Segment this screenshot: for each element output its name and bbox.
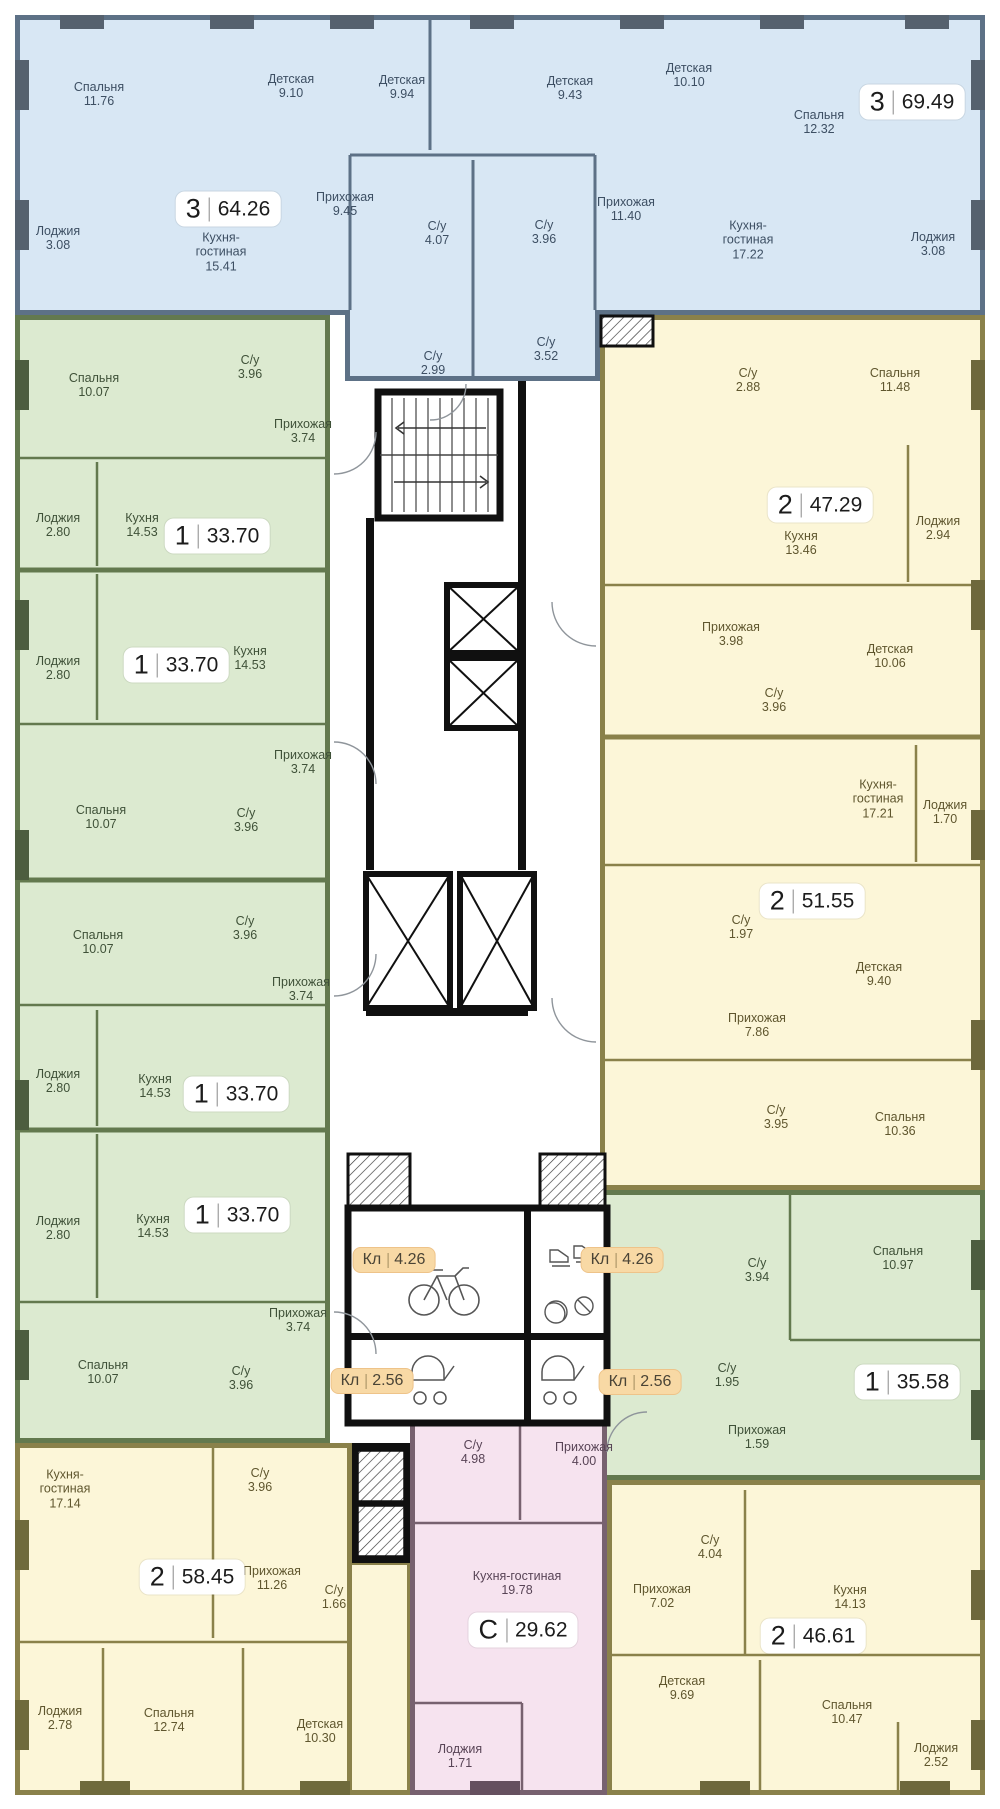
apartment-type: 1	[134, 650, 149, 681]
apartment-area: 33.70	[226, 1082, 279, 1106]
room-label: С/у2.88	[736, 366, 760, 395]
apartment-zone-blue-core[interactable]	[345, 310, 600, 381]
room-label: Детская10.30	[297, 1717, 343, 1746]
badge-divider	[893, 90, 894, 114]
room-label: Спальня10.47	[822, 1698, 872, 1727]
apartment-badge[interactable]: 133.70	[165, 519, 270, 554]
room-label: С/у3.96	[762, 686, 786, 715]
room-label: С/у3.96	[532, 218, 556, 247]
badge-divider	[633, 1375, 634, 1390]
badge-divider	[801, 493, 802, 517]
badge-divider	[506, 1618, 507, 1642]
apartment-badge[interactable]: 133.70	[185, 1198, 290, 1233]
room-label: Кухня14.53	[125, 511, 158, 540]
room-label: Детская10.06	[867, 642, 913, 671]
room-label: Прихожая4.00	[555, 1440, 613, 1469]
storage-badge: Кл4.26	[353, 1247, 436, 1273]
room-label: С/у1.95	[715, 1361, 739, 1390]
room-label: Спальня10.07	[69, 371, 119, 400]
apartment-type: 2	[778, 490, 793, 521]
stroller-icon	[542, 1356, 584, 1404]
apartment-badge[interactable]: 247.29	[768, 488, 873, 523]
room-label: С/у4.07	[425, 219, 449, 248]
room-label: Детская9.69	[659, 1674, 705, 1703]
apartment-badge[interactable]: 258.45	[140, 1560, 245, 1595]
room-label: Лоджия2.78	[38, 1704, 82, 1733]
apartment-badge[interactable]: 246.61	[761, 1619, 866, 1654]
bicycle-icon	[409, 1268, 479, 1315]
room-label: Лоджия2.80	[36, 654, 80, 683]
room-label: Кухня14.53	[138, 1072, 171, 1101]
storage-label: Кл	[341, 1372, 360, 1390]
badge-divider	[888, 1370, 889, 1394]
apartment-area: 33.70	[227, 1203, 280, 1227]
room-label: Лоджия2.80	[36, 1214, 80, 1243]
apartment-badge[interactable]: С29.62	[468, 1613, 577, 1648]
apartment-zone-1-3558[interactable]	[600, 1190, 985, 1480]
apartment-type: 1	[865, 1367, 880, 1398]
apartment-badge[interactable]: 369.49	[860, 85, 965, 120]
room-label: С/у3.96	[238, 353, 262, 382]
room-label: С/у3.52	[534, 335, 558, 364]
apartment-badge[interactable]: 251.55	[760, 884, 865, 919]
room-label: С/у3.96	[248, 1466, 272, 1495]
apartment-type: 1	[195, 1200, 210, 1231]
room-label: Кухня-гостиная17.22	[716, 219, 780, 262]
room-label: Кухня14.53	[233, 644, 266, 673]
room-label: Лоджия2.80	[36, 1067, 80, 1096]
room-label: С/у3.96	[234, 806, 258, 835]
apartment-zone-1-3370-column[interactable]	[15, 315, 330, 1443]
storage-label: Кл	[609, 1373, 628, 1391]
storage-label: Кл	[591, 1251, 610, 1269]
balls-icon	[545, 1297, 593, 1323]
apartment-area: 46.61	[803, 1624, 856, 1648]
room-label: Спальня12.74	[144, 1706, 194, 1735]
room-label: Спальня12.32	[794, 108, 844, 137]
badge-divider	[209, 197, 210, 221]
room-label: Лоджия2.94	[916, 514, 960, 543]
apartment-type: С	[478, 1615, 498, 1646]
apartment-area: 51.55	[802, 889, 855, 913]
room-label: Прихожая7.02	[633, 1582, 691, 1611]
apartment-area: 69.49	[902, 90, 955, 114]
room-label: С/у1.97	[729, 913, 753, 942]
room-label: Кухня14.53	[136, 1212, 169, 1241]
apartment-area: 29.62	[515, 1618, 568, 1642]
room-label: Прихожая9.45	[316, 190, 374, 219]
apartment-area: 33.70	[166, 653, 219, 677]
room-label: Детская9.40	[856, 960, 902, 989]
room-label: Кухня14.13	[833, 1583, 866, 1612]
room-label: Прихожая3.98	[702, 620, 760, 649]
room-label: Лоджия3.08	[36, 224, 80, 253]
room-label: Спальня10.07	[76, 803, 126, 832]
apartment-type: 2	[771, 1621, 786, 1652]
room-label: Спальня10.07	[73, 928, 123, 957]
apartment-area: 35.58	[897, 1370, 950, 1394]
floor-plan: Спальня11.76 Детская9.10 Детская9.94 При…	[0, 0, 1000, 1809]
room-label: Спальня11.48	[870, 366, 920, 395]
badge-divider	[387, 1253, 388, 1268]
apartment-badge[interactable]: 133.70	[184, 1077, 289, 1112]
storage-area: 2.56	[372, 1372, 403, 1390]
storage-badge: Кл4.26	[581, 1247, 664, 1273]
room-label: С/у1.66	[322, 1583, 346, 1612]
badge-divider	[793, 889, 794, 913]
storage-area: 2.56	[640, 1373, 671, 1391]
apartment-badge[interactable]: 135.58	[855, 1365, 960, 1400]
room-label: Кухня13.46	[784, 529, 817, 558]
apartment-type: 2	[770, 886, 785, 917]
room-label: Спальня11.76	[74, 80, 124, 109]
room-label: Лоджия3.08	[911, 230, 955, 259]
storage-area: 4.26	[394, 1251, 425, 1269]
apartment-type: 3	[870, 87, 885, 118]
room-label: Прихожая11.26	[243, 1564, 301, 1593]
room-label: Кухня-гостиная19.78	[473, 1569, 561, 1598]
room-label: С/у3.94	[745, 1256, 769, 1285]
room-label: Кухня-гостиная15.41	[189, 231, 253, 274]
room-label: Прихожая3.74	[272, 975, 330, 1004]
storage-area: 4.26	[622, 1251, 653, 1269]
badge-divider	[794, 1624, 795, 1648]
badge-divider	[615, 1253, 616, 1268]
room-label: Прихожая11.40	[597, 195, 655, 224]
room-label: Детская9.43	[547, 74, 593, 103]
room-label: Спальня10.97	[873, 1244, 923, 1273]
apartment-badge[interactable]: 364.26	[176, 192, 281, 227]
apartment-zone-2-5845-ext[interactable]	[352, 1560, 412, 1795]
badge-divider	[218, 1203, 219, 1227]
room-label: С/у3.96	[229, 1364, 253, 1393]
elevator-shafts	[366, 585, 534, 1008]
apartment-type: 3	[186, 194, 201, 225]
apartment-zone-2-4729-5155[interactable]	[600, 315, 985, 1190]
storage-badge: Кл2.56	[599, 1369, 682, 1395]
staircase	[378, 392, 500, 518]
room-label: Спальня10.36	[875, 1110, 925, 1139]
storage-badge: Кл2.56	[331, 1368, 414, 1394]
badge-divider	[157, 653, 158, 677]
apartment-type: 2	[150, 1562, 165, 1593]
room-label: Детская9.10	[268, 72, 314, 101]
room-label: Лоджия2.52	[914, 1741, 958, 1770]
room-label: Лоджия1.70	[923, 798, 967, 827]
room-label: С/у4.98	[461, 1438, 485, 1467]
badge-divider	[173, 1565, 174, 1589]
badge-divider	[217, 1082, 218, 1106]
room-label: Лоджия1.71	[438, 1742, 482, 1771]
badge-divider	[365, 1374, 366, 1389]
storage-label: Кл	[363, 1251, 382, 1269]
room-label: Прихожая7.86	[728, 1011, 786, 1040]
room-label: Детская10.10	[666, 61, 712, 90]
room-label: Прихожая3.74	[269, 1306, 327, 1335]
room-label: Лоджия2.80	[36, 511, 80, 540]
apartment-type: 1	[175, 521, 190, 552]
apartment-area: 47.29	[810, 493, 863, 517]
room-label: Спальня10.07	[78, 1358, 128, 1387]
apartment-area: 64.26	[218, 197, 271, 221]
room-label: Прихожая1.59	[728, 1423, 786, 1452]
room-label: Прихожая3.74	[274, 417, 332, 446]
apartment-type: 1	[194, 1079, 209, 1110]
room-label: Прихожая3.74	[274, 748, 332, 777]
room-label: С/у3.95	[764, 1103, 788, 1132]
room-label: Кухня-гостиная17.14	[33, 1468, 97, 1511]
room-label: С/у4.04	[698, 1533, 722, 1562]
room-label: С/у2.99	[421, 349, 445, 378]
badge-divider	[198, 524, 199, 548]
apartment-area: 58.45	[182, 1565, 235, 1589]
apartment-badge[interactable]: 133.70	[124, 648, 229, 683]
room-label: Кухня-гостиная17.21	[846, 778, 910, 821]
stroller-icon	[412, 1356, 454, 1404]
room-label: Детская9.94	[379, 73, 425, 102]
room-label: С/у3.96	[233, 914, 257, 943]
apartment-area: 33.70	[207, 524, 260, 548]
apartment-zone-3-6426-6949[interactable]	[15, 15, 985, 315]
